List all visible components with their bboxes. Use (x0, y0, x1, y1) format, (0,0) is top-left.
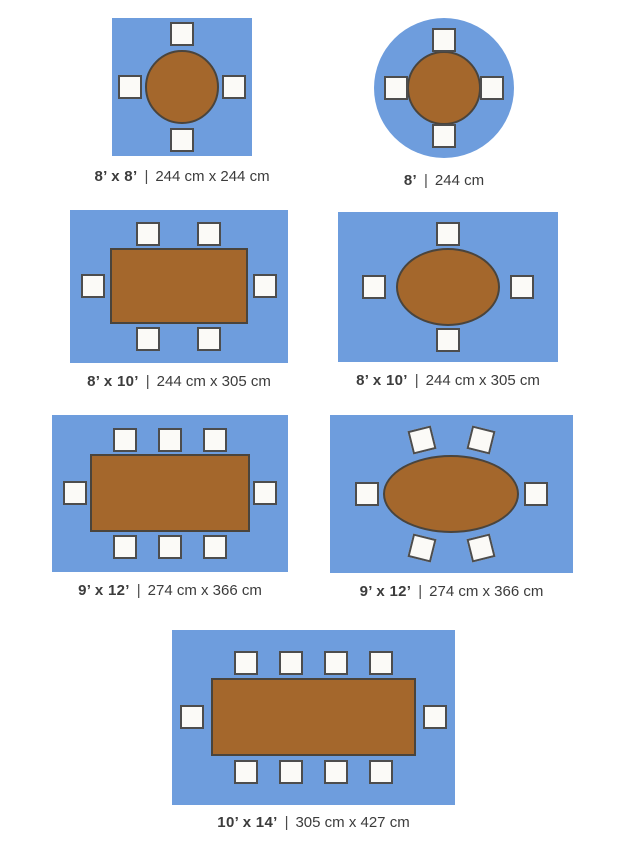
separator: | (415, 372, 419, 389)
chair (136, 327, 160, 351)
chair (203, 535, 227, 559)
chair (203, 428, 227, 452)
chair (113, 428, 137, 452)
size-feet: 8’ (404, 172, 417, 189)
chair (466, 533, 495, 562)
separator: | (424, 172, 428, 189)
size-label: 8’ x 8’|244 cm x 244 cm (94, 167, 269, 187)
dining-table-rectangle (211, 678, 416, 756)
chair (197, 327, 221, 351)
dining-table-rectangle (110, 248, 248, 324)
chair (279, 651, 303, 675)
size-feet: 10’ x 14’ (217, 814, 277, 831)
rug-size-guide: 8’ x 8’|244 cm x 244 cm 8’|244 cm 8’ x 1… (0, 0, 624, 842)
chair (407, 533, 436, 562)
chair (407, 425, 436, 454)
dining-table-oval (383, 455, 519, 533)
chair (362, 275, 386, 299)
rug-rectangle (70, 210, 288, 363)
size-cm: 274 cm x 366 cm (429, 583, 543, 600)
chair (113, 535, 137, 559)
chair (480, 76, 504, 100)
chair (222, 75, 246, 99)
chair (234, 760, 258, 784)
chair (384, 76, 408, 100)
chair (180, 705, 204, 729)
diagram-rect-rug-9x12-oval-table: 9’ x 12’|274 cm x 366 cm (330, 415, 573, 602)
size-feet: 9’ x 12’ (78, 582, 130, 599)
separator: | (285, 814, 289, 831)
rug-rectangle (338, 212, 558, 362)
rug-rectangle (52, 415, 288, 572)
dining-table-rectangle (90, 454, 250, 532)
size-feet: 9’ x 12’ (360, 583, 412, 600)
separator: | (144, 168, 148, 185)
chair (369, 760, 393, 784)
separator: | (137, 582, 141, 599)
size-cm: 244 cm x 244 cm (155, 168, 269, 185)
chair (170, 22, 194, 46)
chair (158, 535, 182, 559)
chair (253, 274, 277, 298)
diagram-rect-rug-8x10-rect-table: 8’ x 10’|244 cm x 305 cm (70, 210, 288, 392)
size-cm: 244 cm (435, 172, 484, 189)
size-label: 9’ x 12’|274 cm x 366 cm (78, 581, 262, 601)
chair (253, 481, 277, 505)
chair (136, 222, 160, 246)
size-label: 8’|244 cm (404, 171, 484, 191)
dining-table-round (145, 50, 219, 124)
chair (324, 651, 348, 675)
rug-rectangle (172, 630, 455, 805)
separator: | (418, 583, 422, 600)
chair (423, 705, 447, 729)
chair (158, 428, 182, 452)
size-feet: 8’ x 8’ (94, 168, 137, 185)
chair (279, 760, 303, 784)
chair (369, 651, 393, 675)
size-label: 8’ x 10’|244 cm x 305 cm (356, 371, 540, 391)
chair (432, 28, 456, 52)
size-feet: 8’ x 10’ (87, 373, 139, 390)
size-label: 10’ x 14’|305 cm x 427 cm (217, 813, 409, 833)
size-cm: 274 cm x 366 cm (148, 582, 262, 599)
size-cm: 244 cm x 305 cm (157, 373, 271, 390)
diagram-square-rug-8x8: 8’ x 8’|244 cm x 244 cm (112, 18, 252, 187)
chair (432, 124, 456, 148)
dining-table-oval (396, 248, 500, 326)
separator: | (146, 373, 150, 390)
diagram-rect-rug-8x10-oval-table: 8’ x 10’|244 cm x 305 cm (338, 212, 558, 391)
chair (81, 274, 105, 298)
dining-table-round (407, 51, 481, 125)
chair (524, 482, 548, 506)
chair (466, 425, 495, 454)
diagram-round-rug-8: 8’|244 cm (374, 18, 514, 191)
diagram-rect-rug-10x14-rect-table: 10’ x 14’|305 cm x 427 cm (172, 630, 455, 833)
size-cm: 244 cm x 305 cm (426, 372, 540, 389)
chair (324, 760, 348, 784)
rug-round (374, 18, 514, 158)
rug-rectangle (330, 415, 573, 573)
chair (197, 222, 221, 246)
size-cm: 305 cm x 427 cm (295, 814, 409, 831)
rug-square (112, 18, 252, 156)
size-label: 9’ x 12’|274 cm x 366 cm (360, 582, 544, 602)
chair (436, 222, 460, 246)
chair (234, 651, 258, 675)
size-label: 8’ x 10’|244 cm x 305 cm (87, 372, 271, 392)
chair (118, 75, 142, 99)
chair (355, 482, 379, 506)
chair (510, 275, 534, 299)
chair (170, 128, 194, 152)
chair (63, 481, 87, 505)
chair (436, 328, 460, 352)
size-feet: 8’ x 10’ (356, 372, 408, 389)
diagram-rect-rug-9x12-rect-table: 9’ x 12’|274 cm x 366 cm (52, 415, 288, 601)
